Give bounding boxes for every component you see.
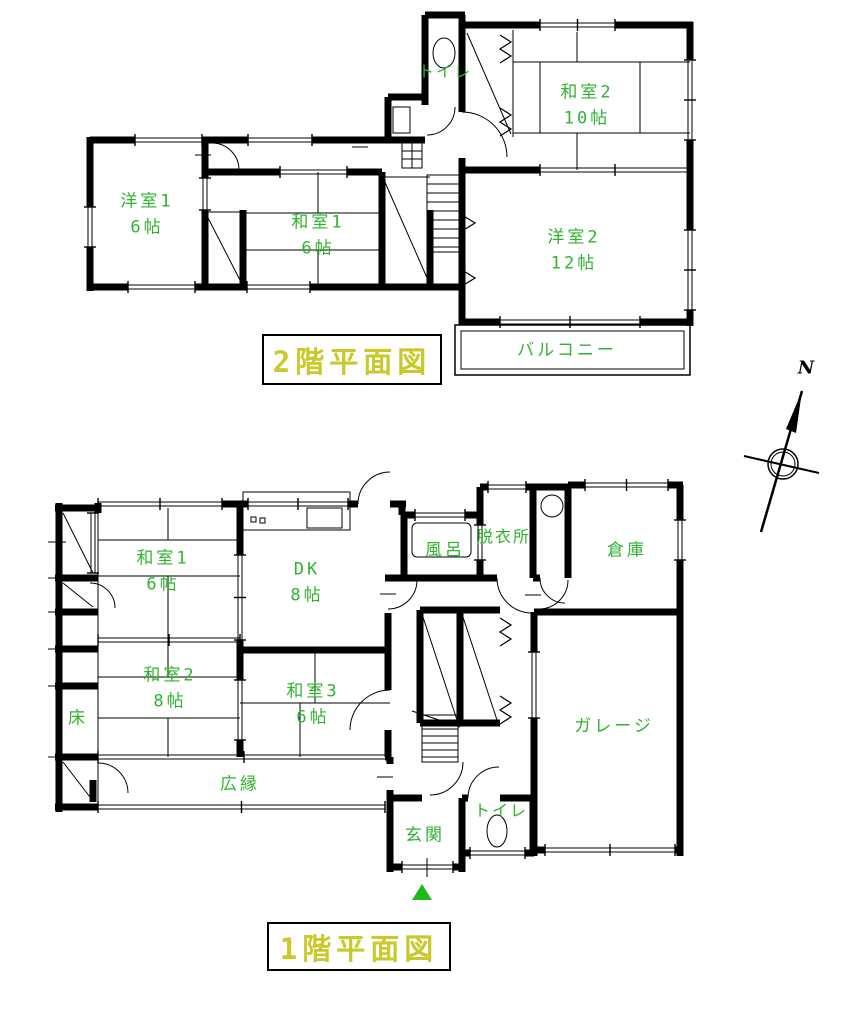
room-label-1f-genkan: 玄関 xyxy=(405,823,445,849)
room-label-2f-yoshitsu1: 洋室16帖 xyxy=(120,190,173,241)
washer-icon xyxy=(541,495,563,517)
compass-icon xyxy=(744,391,819,532)
floor1-title: 1階平面図 xyxy=(267,922,451,971)
room-label-2f-washitsu1: 和室16帖 xyxy=(291,211,344,262)
room-label-1f-washitsu1: 和室16帖 xyxy=(136,547,189,598)
kitchen-counter-icon xyxy=(243,492,350,530)
shelf-2f-icon xyxy=(393,107,410,133)
room-label-2f-washitsu2: 和室210帖 xyxy=(560,81,613,132)
floor2-walls xyxy=(87,15,693,375)
room-label-1f-dressing: 脱衣所 xyxy=(477,525,531,549)
entrance-marker xyxy=(412,884,432,900)
room-label-1f-bath: 風呂 xyxy=(425,538,465,564)
room-label-1f-hiroen: 広縁 xyxy=(220,772,260,798)
floorplan-drawing xyxy=(0,0,842,1011)
room-label-1f-garage: ガレージ xyxy=(574,714,654,740)
room-label-1f-storage: 倉庫 xyxy=(607,538,647,564)
room-label-2f-balcony: バルコニー xyxy=(517,338,617,364)
floor2-title: 2階平面図 xyxy=(262,334,442,385)
north-label: N xyxy=(798,358,814,379)
kitchen-sink-icon xyxy=(307,508,342,528)
floorplan-page: トイレ 和室210帖 洋室16帖 和室16帖 洋室212帖 バルコニー 和室16… xyxy=(0,0,842,1011)
room-label-2f-yoshitsu2: 洋室212帖 xyxy=(547,226,600,277)
room-label-2f-toilet: トイレ xyxy=(418,60,472,84)
room-label-1f-dk: DK8帖 xyxy=(290,558,323,609)
room-label-1f-toilet: トイレ xyxy=(474,799,528,823)
room-label-1f-washitsu2: 和室28帖 xyxy=(143,664,196,715)
room-label-1f-toko: 床 xyxy=(68,706,88,732)
room-label-1f-washitsu3: 和室36帖 xyxy=(286,680,339,731)
